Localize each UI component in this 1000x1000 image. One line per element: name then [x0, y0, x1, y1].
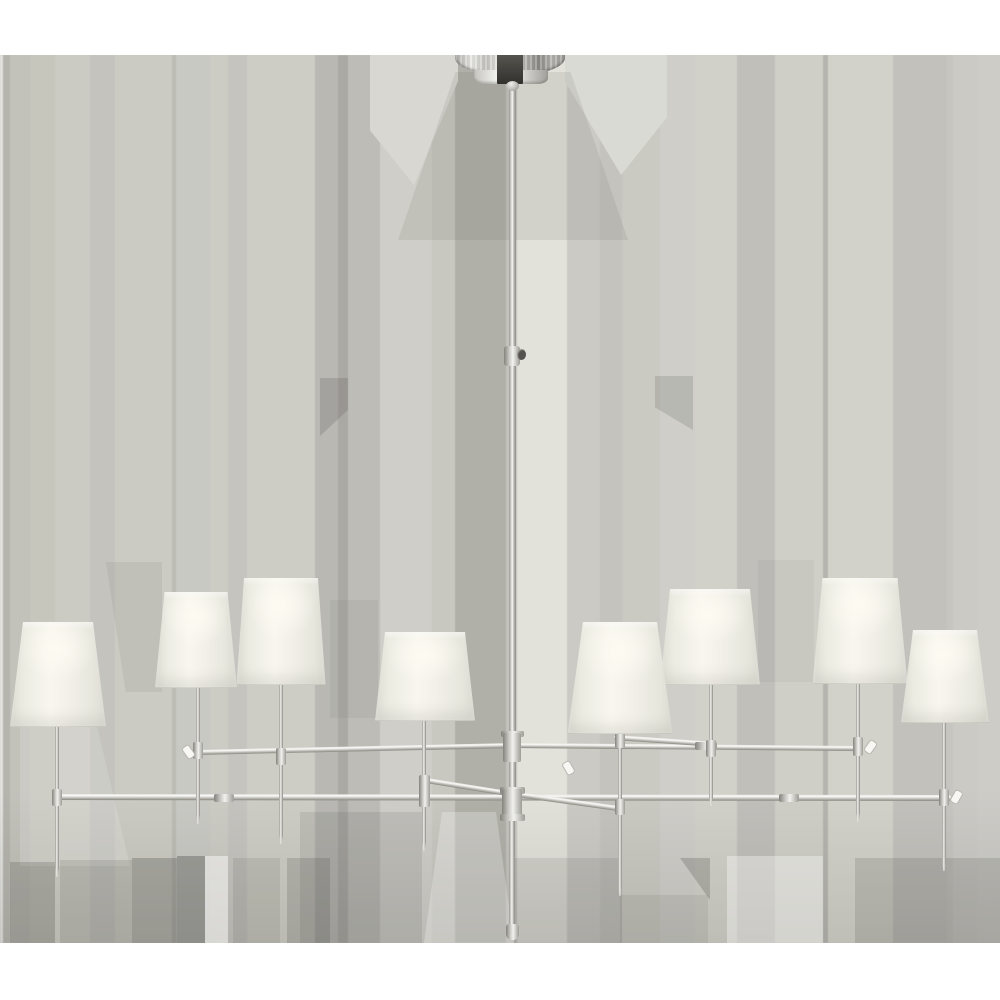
top-white-band	[0, 0, 1000, 55]
bottom-white-band	[0, 943, 1000, 1000]
chandelier-product-image	[0, 0, 1000, 1000]
white-band-layer	[0, 0, 1000, 1000]
